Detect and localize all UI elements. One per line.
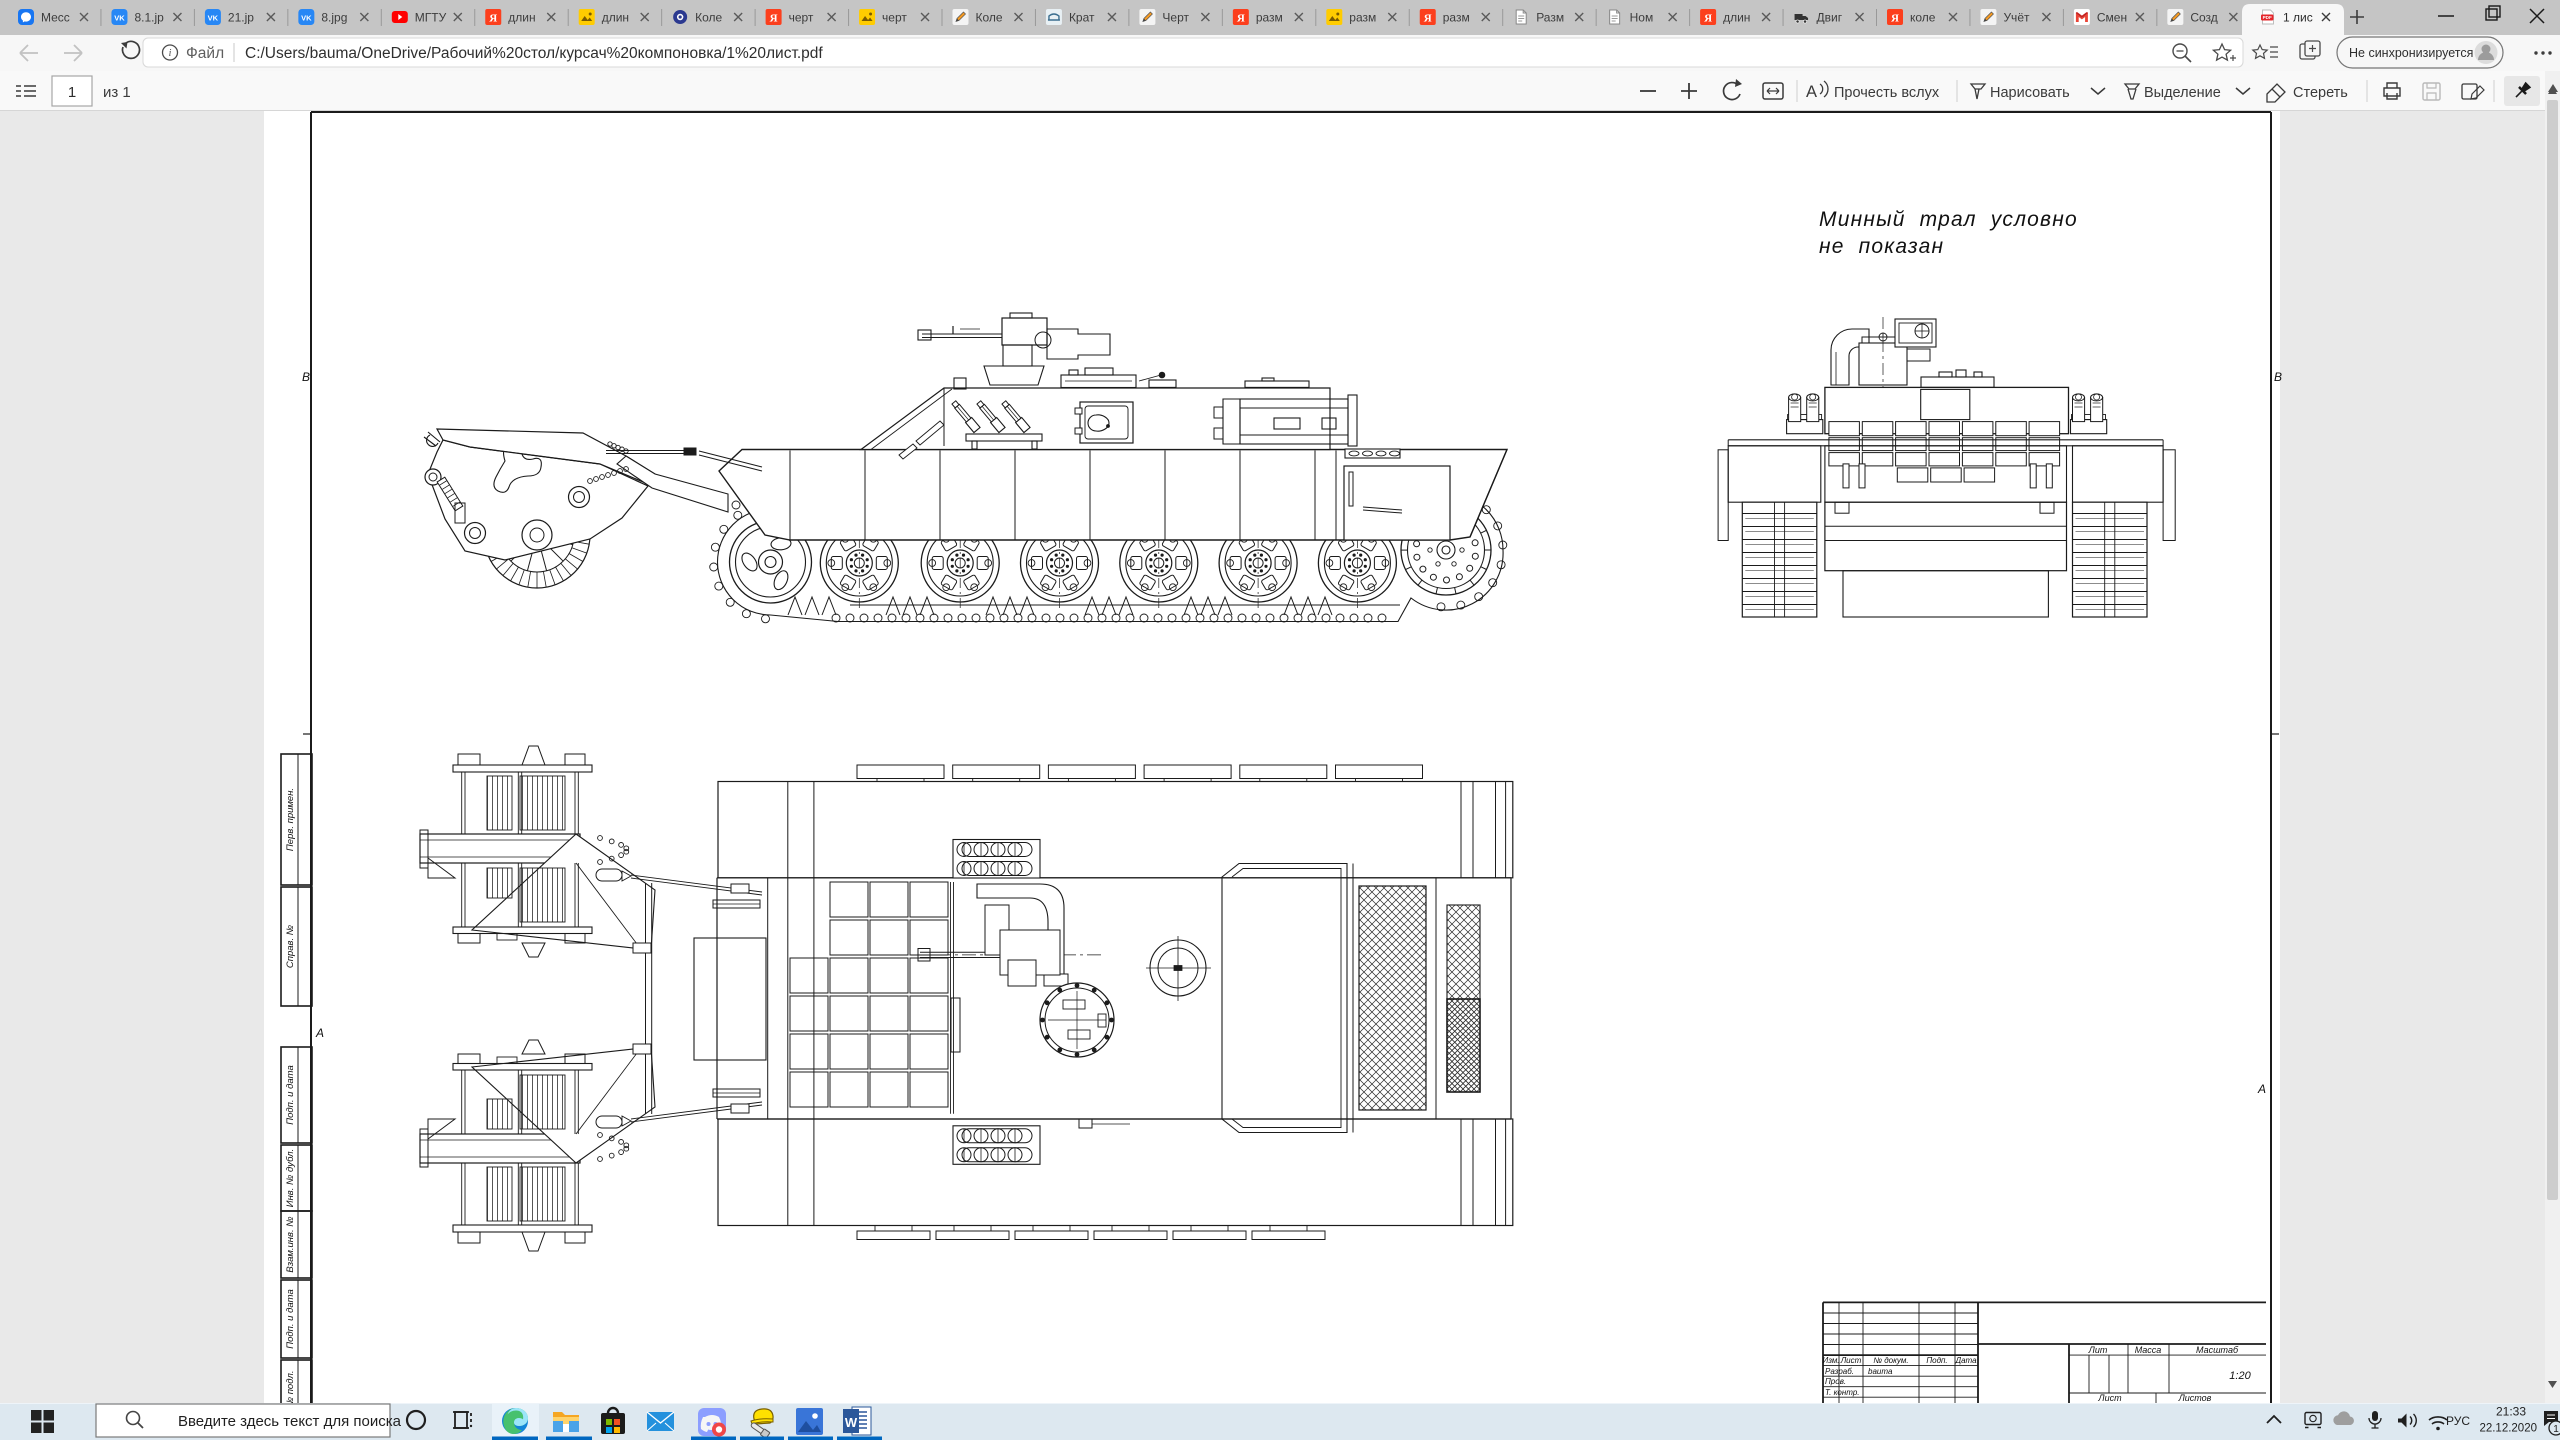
svg-text:21:33: 21:33: [2496, 1405, 2526, 1419]
svg-text:Лист: Лист: [1840, 1356, 1862, 1365]
svg-text:Подп. и дата: Подп. и дата: [285, 1065, 296, 1124]
svg-text:C:/Users/bauma/OneDrive/Рабочи: C:/Users/bauma/OneDrive/Рабочий%20стол/к…: [245, 45, 823, 62]
svg-text:В: В: [2274, 370, 2282, 384]
svg-text:А: А: [2257, 1082, 2266, 1096]
svg-text:длин: длин: [602, 11, 629, 25]
svg-text:Введите здесь текст для поиска: Введите здесь текст для поиска: [178, 1413, 402, 1430]
svg-text:черт: черт: [789, 11, 814, 25]
svg-text:Минный трал условно: Минный трал условно: [1819, 208, 2078, 231]
svg-text:Изм.: Изм.: [1822, 1356, 1839, 1365]
svg-text:Я: Я: [770, 13, 778, 25]
svg-text:Я: Я: [1424, 13, 1432, 25]
svg-text:Перв. примен.: Перв. примен.: [285, 788, 296, 851]
svg-text:Смен: Смен: [2097, 11, 2127, 25]
svg-text:Пров.: Пров.: [1825, 1377, 1846, 1386]
svg-text:разм: разм: [1256, 11, 1283, 25]
svg-text:Созд: Созд: [2190, 11, 2217, 25]
svg-text:РУС: РУС: [2446, 1414, 2470, 1428]
svg-text:из 1: из 1: [103, 84, 131, 101]
svg-text:разм: разм: [1349, 11, 1376, 25]
svg-text:Я: Я: [1237, 13, 1245, 25]
svg-text:Я: Я: [1891, 13, 1899, 25]
svg-text:1:20: 1:20: [2229, 1370, 2251, 1382]
svg-text:Разраб.: Разраб.: [1825, 1367, 1854, 1376]
svg-text:Дата: Дата: [1954, 1356, 1977, 1365]
svg-text:Т. контр.: Т. контр.: [1825, 1388, 1860, 1397]
svg-text:8.jpg: 8.jpg: [321, 11, 347, 25]
svg-text:А: А: [1806, 83, 1817, 101]
svg-text:Месс: Месс: [41, 11, 70, 25]
svg-text:Лист: Лист: [2097, 1393, 2122, 1403]
svg-text:Выделение: Выделение: [2144, 85, 2221, 101]
svg-text:Стереть: Стереть: [2293, 85, 2348, 101]
svg-text:21.jp: 21.jp: [228, 11, 254, 25]
svg-text:МГТУ: МГТУ: [415, 11, 447, 25]
svg-text:Прочесть вслух: Прочесть вслух: [1834, 85, 1940, 101]
svg-text:Инв. № дубл.: Инв. № дубл.: [285, 1149, 296, 1207]
svg-text:Я: Я: [489, 13, 497, 25]
svg-text:Крат: Крат: [1069, 11, 1095, 25]
svg-text:PDF: PDF: [2263, 15, 2272, 20]
svg-text:Коле: Коле: [695, 11, 722, 25]
svg-text:Подп. и дата: Подп. и дата: [285, 1289, 296, 1348]
svg-text:не показан: не показан: [1819, 235, 1944, 258]
svg-text:Черт: Черт: [1162, 11, 1189, 25]
svg-text:W: W: [845, 1415, 858, 1430]
svg-text:Листов: Листов: [2178, 1393, 2212, 1403]
svg-text:длин: длин: [508, 11, 535, 25]
svg-text:Масштаб: Масштаб: [2196, 1345, 2239, 1355]
svg-text:Подп.: Подп.: [1926, 1356, 1947, 1365]
svg-text:Разм: Разм: [1536, 11, 1564, 25]
svg-text:Взам.инв. №: Взам.инв. №: [285, 1216, 296, 1272]
svg-text:В: В: [302, 370, 310, 384]
svg-text:длин: длин: [1723, 11, 1750, 25]
svg-text:№ докум.: № докум.: [1873, 1356, 1908, 1365]
svg-text:Я: Я: [1704, 13, 1712, 25]
svg-text:А: А: [315, 1026, 324, 1040]
svg-text:Учёт: Учёт: [2003, 11, 2030, 25]
svg-text:Не синхронизируется: Не синхронизируется: [2349, 46, 2473, 60]
svg-text:i: i: [169, 48, 172, 59]
svg-text:1: 1: [2553, 1424, 2559, 1435]
svg-text:VK: VK: [208, 14, 219, 23]
svg-text:коле: коле: [1910, 11, 1936, 25]
svg-text:Ном: Ном: [1630, 11, 1654, 25]
svg-text:Справ. №: Справ. №: [285, 925, 296, 968]
svg-text:Двиг: Двиг: [1817, 11, 1843, 25]
svg-text:VK: VK: [114, 14, 125, 23]
svg-text:черт: черт: [882, 11, 907, 25]
svg-text:1 лис: 1 лис: [2283, 11, 2313, 25]
svg-text:VK: VK: [301, 14, 312, 23]
svg-text:Файл: Файл: [186, 45, 224, 62]
svg-text:Масса: Масса: [2135, 1345, 2162, 1355]
svg-text:8.1.jp: 8.1.jp: [134, 11, 164, 25]
svg-text:разм: разм: [1443, 11, 1470, 25]
svg-text:Нарисовать: Нарисовать: [1990, 85, 2070, 101]
svg-text:1: 1: [68, 84, 76, 101]
svg-text:bauma: bauma: [1868, 1367, 1893, 1376]
svg-text:Лит: Лит: [2088, 1345, 2108, 1355]
svg-text:Коле: Коле: [976, 11, 1003, 25]
svg-text:22.12.2020: 22.12.2020: [2479, 1423, 2537, 1435]
